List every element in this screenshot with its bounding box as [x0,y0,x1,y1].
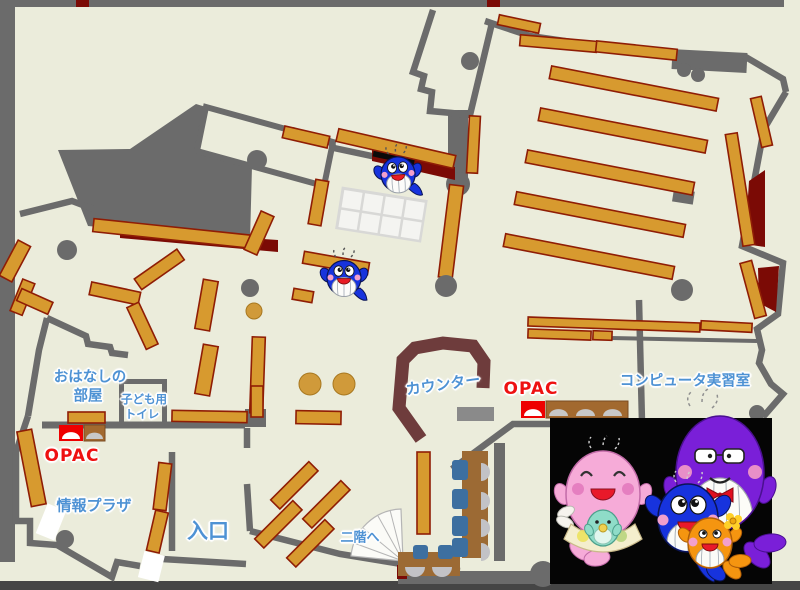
label-to-second-floor: 二階へ [340,527,379,546]
label-entrance: 入口 [187,515,229,545]
spout-icon [688,389,718,408]
label-opac-left: OPAC [45,446,100,466]
label-kids-toilet-2: トイレ [125,406,160,422]
opac-terminal-left [59,425,105,441]
label-story-room-1: おはなしの [54,366,127,387]
label-opac-right: OPAC [504,379,559,399]
label-story-room-2: 部屋 [74,385,103,406]
label-info-plaza: 情報プラザ [56,495,131,516]
label-kids-toilet-1: 子ども用 [121,391,167,407]
study-area [398,451,490,577]
opac-terminal-right [521,401,628,418]
tables-grid [335,187,428,243]
label-computer-room: コンピュータ実習室 [620,370,751,391]
counter-desk [457,407,494,421]
library-floor-map: おはなしの 部屋 子ども用 トイレ OPAC 情報プラザ 入口 カウンター OP… [0,0,800,590]
flower-icon [724,513,742,530]
